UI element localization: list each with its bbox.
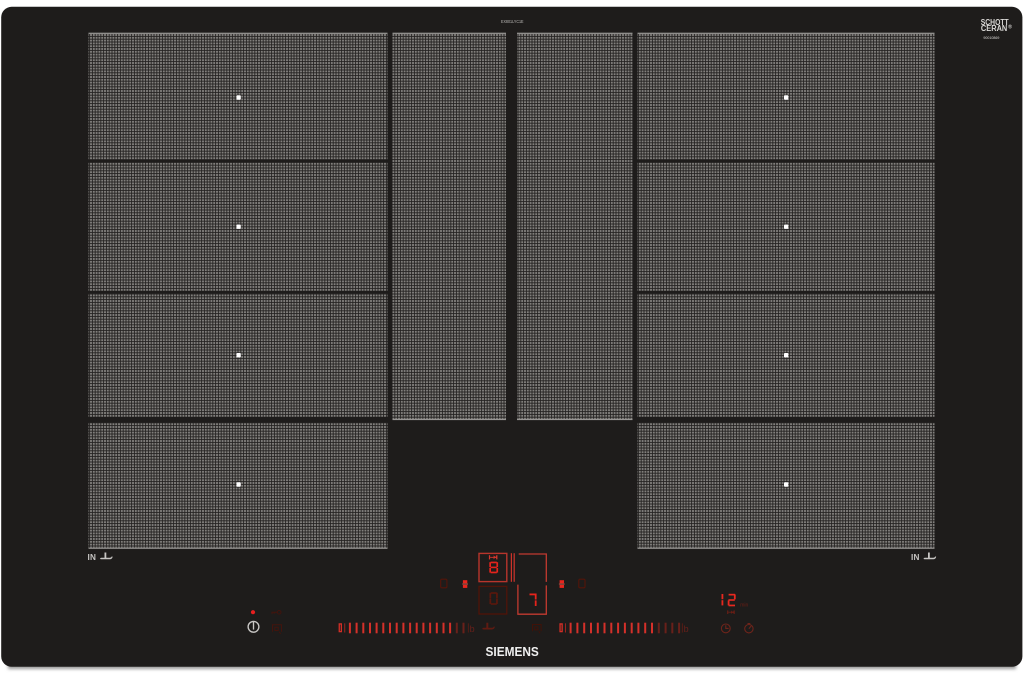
svg-text:90010869: 90010869 <box>983 36 999 40</box>
svg-text:SIEMENS: SIEMENS <box>486 645 539 659</box>
svg-text:min: min <box>740 603 748 609</box>
svg-text:b: b <box>470 624 475 634</box>
svg-text:EX801LYC1E: EX801LYC1E <box>501 19 524 24</box>
svg-text:CERAN: CERAN <box>981 24 1008 33</box>
svg-text:IN: IN <box>911 553 920 562</box>
svg-text:b: b <box>684 624 689 634</box>
svg-text:®: ® <box>1008 24 1012 31</box>
svg-text:IN: IN <box>88 553 97 562</box>
